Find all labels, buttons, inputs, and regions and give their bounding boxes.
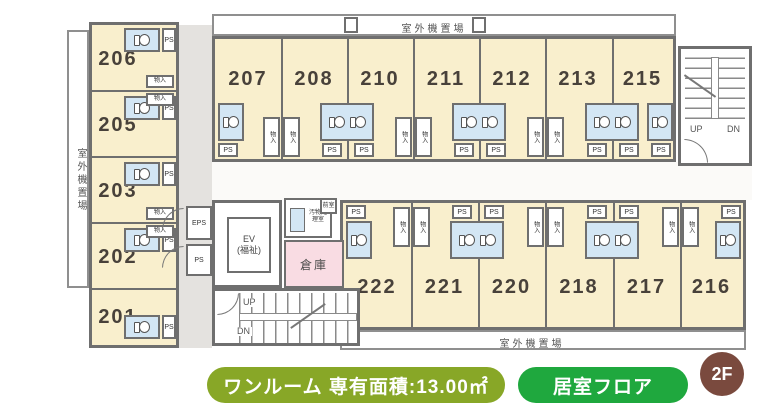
ps-label: PS <box>186 244 212 276</box>
stair-rail <box>239 313 357 321</box>
elevator-label-line2: (福祉) <box>237 245 261 256</box>
ps-label: PS <box>486 143 506 157</box>
wall <box>347 39 349 159</box>
room-208: 208 <box>281 69 347 89</box>
room-211: 211 <box>413 69 479 89</box>
ps-label: PS <box>346 205 366 219</box>
ps-label: PS <box>218 143 238 157</box>
bathroom-pod <box>452 103 506 141</box>
ps-label: PS <box>619 143 639 157</box>
toilet-icon <box>480 234 496 246</box>
floor-plan: 室外機置場 室外機置場 室外機置場 206 205 203 202 201 PS… <box>0 0 760 414</box>
ps-label: PS <box>162 28 176 52</box>
toilet-icon <box>350 116 366 128</box>
bathroom-pod <box>346 221 372 259</box>
down-label: DN <box>725 125 742 134</box>
closet-box: 物入 <box>527 207 544 247</box>
ps-label: PS <box>162 162 176 186</box>
toilet-icon <box>594 116 610 128</box>
ps-label: PS <box>651 143 671 157</box>
toilet-icon <box>615 116 631 128</box>
bathroom-pod <box>320 103 374 141</box>
unit-info-badge: ワンルーム 専有面積:13.00㎡ <box>207 367 505 403</box>
balcony-bottom: 室外機置場 <box>340 330 746 350</box>
closet-box: 物入 <box>413 207 430 247</box>
outdoor-unit-top-label: 室外機置場 <box>374 20 494 35</box>
left-wing: 206 205 203 202 201 PS PS PS PS PS 物入 物入… <box>89 22 179 348</box>
staircase-right: UP DN <box>678 46 752 166</box>
closet-box: 物入 <box>662 207 679 247</box>
wall <box>479 39 481 159</box>
balcony-left: 室外機置場 <box>67 30 89 288</box>
elevator-car: EV (福祉) <box>227 217 271 273</box>
floor-type-badge: 居室フロア <box>518 367 688 403</box>
anteroom-label: 前室 <box>320 198 337 214</box>
room-213: 213 <box>545 69 611 89</box>
unit-info-text: ワンルーム 専有面積:13.00㎡ <box>223 372 489 399</box>
balcony-pillar <box>344 17 358 33</box>
stair-rail <box>711 57 719 119</box>
closet-box: 物入 <box>146 93 174 106</box>
bathroom-pod <box>647 103 673 141</box>
bathroom-pod <box>124 162 160 186</box>
closet-box: 物入 <box>146 75 174 88</box>
wall <box>612 39 614 159</box>
down-label: DN <box>235 327 252 336</box>
room-216: 216 <box>680 277 743 297</box>
closet-box: 物入 <box>393 207 410 247</box>
outdoor-unit-bottom-label: 室外機置場 <box>472 335 592 350</box>
ps-label: PS <box>354 143 374 157</box>
ps-label: PS <box>452 205 472 219</box>
closet-box: 物入 <box>682 207 699 247</box>
toilet-icon <box>461 116 477 128</box>
up-label: UP <box>241 298 258 307</box>
toilet-icon <box>459 234 475 246</box>
closet-box: 物入 <box>527 117 544 157</box>
toilet-icon <box>652 116 668 128</box>
toilet-icon <box>134 168 150 180</box>
door-arc <box>217 293 239 315</box>
staircase-center: UP DN <box>212 288 360 346</box>
door-arc <box>684 139 708 163</box>
bathroom-pod <box>124 315 160 339</box>
outdoor-unit-left-label: 室外機置場 <box>73 148 88 213</box>
ps-label: PS <box>322 143 342 157</box>
elevator-label-line1: EV <box>237 234 261 245</box>
toilet-icon <box>594 234 610 246</box>
wall <box>92 288 176 290</box>
closet-box: 物入 <box>415 117 432 157</box>
top-wing: 207 208 210 211 212 213 215 PS 物入 物入 PS … <box>212 36 676 162</box>
elevator-room: EV (福祉) <box>212 200 282 288</box>
room-220: 220 <box>478 277 545 297</box>
toilet-icon <box>351 234 367 246</box>
ps-label: PS <box>484 205 504 219</box>
eps-label: EPS <box>186 206 212 240</box>
closet-box: 物入 <box>395 117 412 157</box>
closet-box: 物入 <box>547 117 564 157</box>
room-217: 217 <box>613 277 680 297</box>
toilet-icon <box>615 234 631 246</box>
ps-label: PS <box>721 205 741 219</box>
room-212: 212 <box>479 69 545 89</box>
bathroom-pod <box>585 221 639 259</box>
ps-label: PS <box>619 205 639 219</box>
closet-box: 物入 <box>263 117 280 157</box>
corridor-vertical <box>179 25 212 348</box>
up-label: UP <box>688 125 705 134</box>
ps-label: PS <box>587 205 607 219</box>
toilet-icon <box>329 116 345 128</box>
bathroom-pod <box>715 221 741 259</box>
wall <box>92 156 176 158</box>
storage-room: 倉庫 <box>284 240 344 288</box>
room-218: 218 <box>545 277 613 297</box>
room-210: 210 <box>347 69 413 89</box>
bathroom-pod <box>450 221 504 259</box>
corridor-horizontal <box>212 162 752 200</box>
toilet-icon <box>134 321 150 333</box>
floor-number-badge: 2F <box>700 352 744 396</box>
bathroom-pod <box>124 28 160 52</box>
bottom-wing: 222 221 220 218 217 216 PS 物入 物入 PS PS 物… <box>340 200 746 330</box>
closet-box: 物入 <box>547 207 564 247</box>
wall <box>92 90 176 92</box>
ps-label: PS <box>162 315 176 339</box>
room-207: 207 <box>215 69 281 89</box>
toilet-icon <box>720 234 736 246</box>
room-221: 221 <box>411 277 478 297</box>
toilet-icon <box>223 116 239 128</box>
storage-label: 倉庫 <box>300 256 328 273</box>
toilet-icon <box>482 116 498 128</box>
closet-box: 物入 <box>283 117 300 157</box>
floor-type-text: 居室フロア <box>553 372 653 399</box>
floor-number-text: 2F <box>711 364 732 385</box>
room-206: 206 <box>94 49 142 69</box>
ps-label: PS <box>587 143 607 157</box>
toilet-icon <box>134 34 150 46</box>
bathroom-pod <box>218 103 244 141</box>
balcony-top: 室外機置場 <box>212 14 676 36</box>
sink <box>290 208 305 232</box>
room-215: 215 <box>612 69 673 89</box>
ps-label: PS <box>454 143 474 157</box>
bathroom-pod <box>585 103 639 141</box>
